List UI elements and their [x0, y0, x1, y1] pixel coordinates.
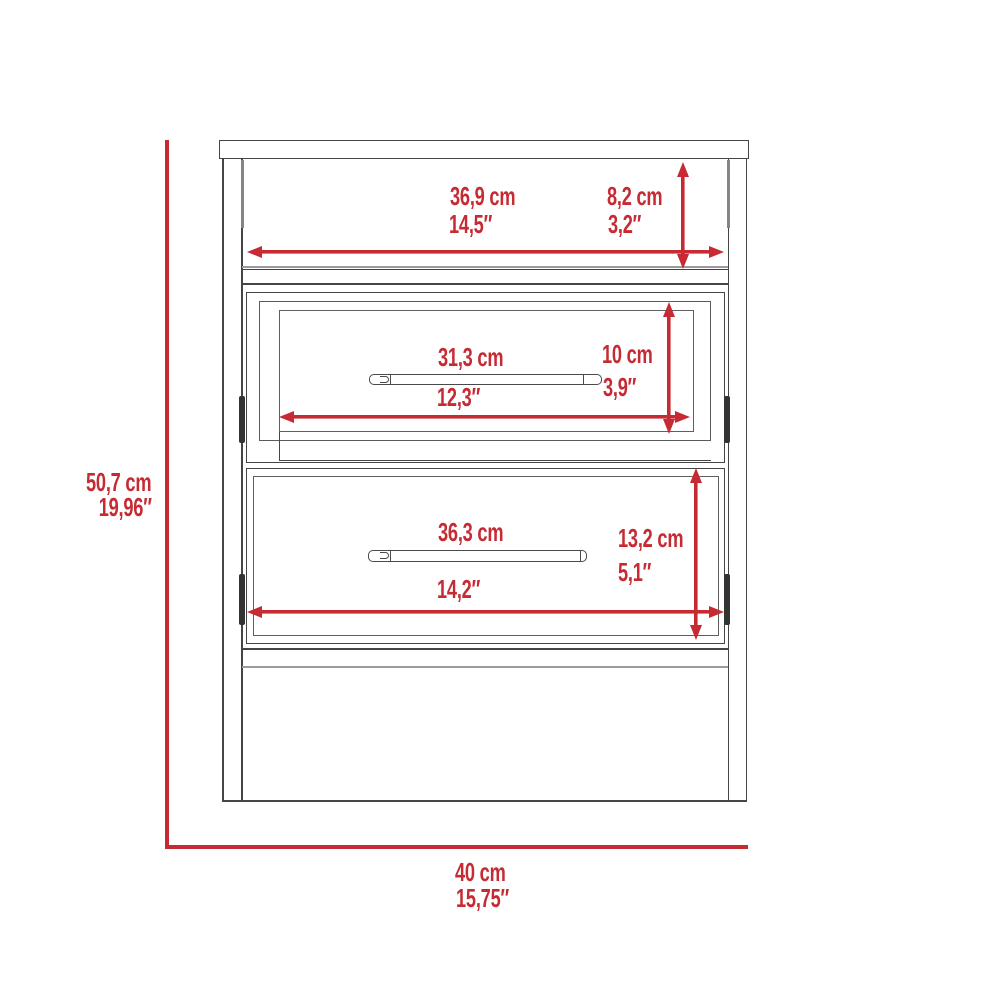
shelf-height-arrow — [677, 162, 689, 269]
overall-width-label-in: 15,75″ — [456, 885, 509, 911]
overall-height-label-in: 19,96″ — [99, 494, 152, 520]
top-drawer-height-arrow — [663, 302, 675, 434]
top-drawer-height-label-cm: 10 cm — [602, 341, 653, 367]
left-inner-shadow — [241, 160, 244, 228]
bottom-drawer-width-label-in: 14,2″ — [437, 576, 480, 602]
bottom-drawer-width-arrow — [247, 606, 724, 618]
bottom-drawer-height-label-in: 5,1″ — [618, 559, 651, 585]
bottom-drawer-height-arrow — [690, 468, 702, 640]
top-drawer-front-edge — [279, 432, 281, 460]
handle-right-cap — [583, 375, 584, 384]
overall-width-label-cm: 40 cm — [455, 859, 506, 885]
top-drawer-width-label-cm: 31,3 cm — [438, 344, 503, 370]
top-drawer-height-label-in: 3,9″ — [603, 374, 636, 400]
bottom-drawer-handle[interactable] — [368, 550, 587, 562]
bottom-drawer-height-label-cm: 13,2 cm — [618, 525, 683, 551]
top-drawer-width-label-in: 12,3″ — [437, 384, 480, 410]
top-drawer-handle[interactable] — [369, 374, 602, 385]
left-side-outer-edge — [222, 158, 224, 801]
hinge-left-bottom — [239, 574, 245, 625]
base-bottom-edge — [222, 800, 747, 802]
handle-arc — [380, 376, 389, 383]
hinge-right-bottom — [724, 574, 730, 625]
top-drawer-front-bottom — [279, 460, 711, 462]
base-rail-bottom-line — [242, 666, 728, 668]
shelf-rail-line — [242, 283, 728, 285]
shelf-board-top-line — [242, 266, 728, 268]
overall-height-line — [165, 140, 169, 849]
right-side-inner-edge — [728, 158, 730, 801]
hinge-left-top — [239, 396, 245, 443]
top-drawer-width-arrow — [279, 411, 690, 423]
right-side-outer-edge — [746, 158, 748, 801]
dimension-diagram: 36,9 cm 14,5″ 8,2 cm 3,2″ 31,3 cm 12,3″ … — [0, 0, 1000, 1000]
shelf-height-label-in: 3,2″ — [608, 211, 641, 237]
shelf-width-label-cm: 36,9 cm — [450, 183, 515, 209]
tabletop — [219, 140, 749, 159]
overall-width-line — [165, 845, 749, 849]
right-inner-shadow — [727, 160, 730, 228]
shelf-height-label-cm: 8,2 cm — [607, 183, 662, 209]
base-rail-top-line — [242, 648, 728, 650]
shelf-width-label-in: 14,5″ — [449, 211, 492, 237]
handle-right-cap — [580, 551, 581, 561]
handle-arc — [380, 552, 389, 559]
handle-left-cap — [390, 375, 391, 384]
shelf-board-bottom-line — [242, 269, 728, 271]
bottom-drawer-width-label-cm: 36,3 cm — [438, 519, 503, 545]
shelf-width-arrow — [247, 246, 724, 258]
hinge-right-top — [724, 396, 730, 443]
handle-left-cap — [390, 551, 391, 561]
left-side-inner-edge — [241, 158, 243, 801]
